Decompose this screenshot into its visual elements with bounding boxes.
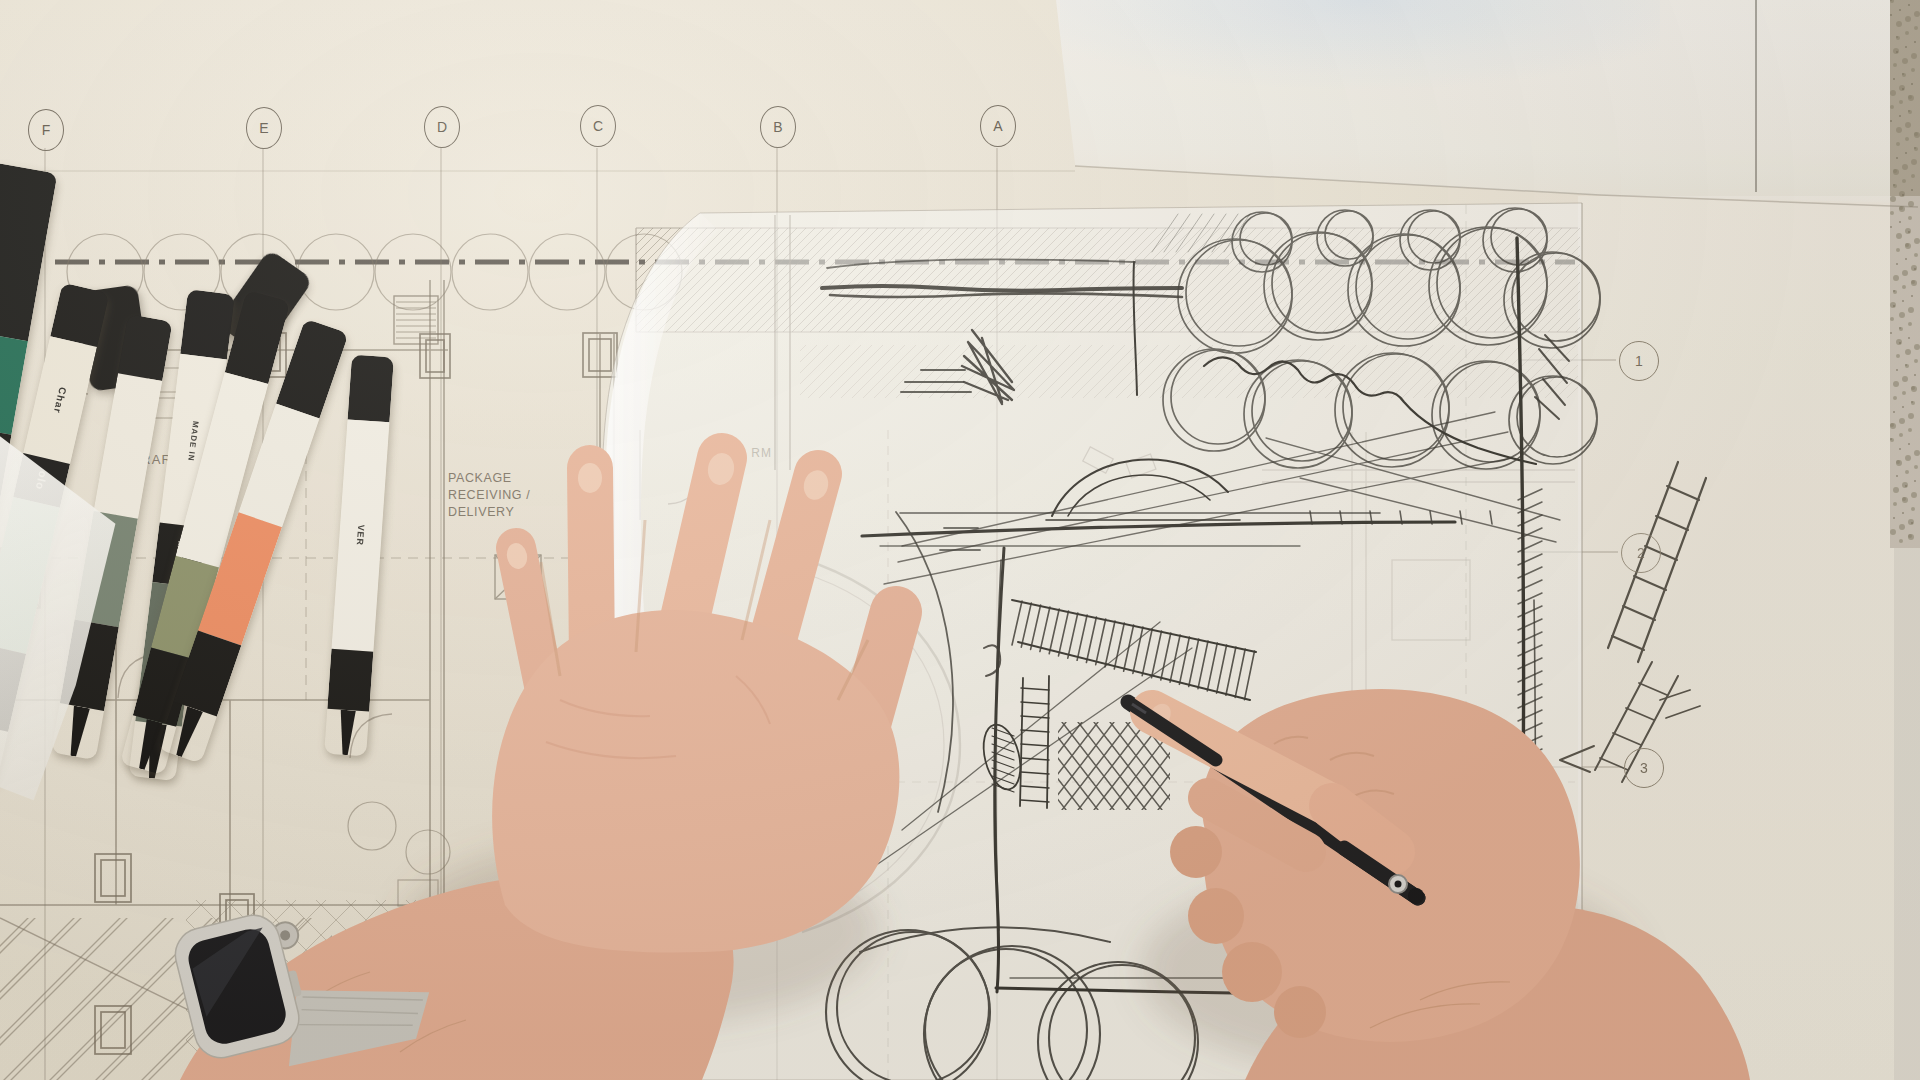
left-index-finger: [770, 474, 818, 650]
hands-layer: [0, 0, 1920, 1080]
pen-end-cap: [1408, 888, 1424, 904]
curled-finger-knuckle: [1274, 986, 1326, 1038]
pen-ring-center: [1395, 881, 1402, 888]
left-palm: [492, 610, 899, 952]
curled-finger-knuckle: [1170, 826, 1222, 878]
drafting-desk-scene: LIBRARY PACKAGE RECEIVING / DELIVERY TRA…: [0, 0, 1920, 1080]
curled-finger-knuckle: [1222, 942, 1282, 1002]
left-hand: [492, 451, 899, 952]
ring-nail: [578, 463, 602, 493]
curled-finger-knuckle: [1188, 888, 1244, 944]
